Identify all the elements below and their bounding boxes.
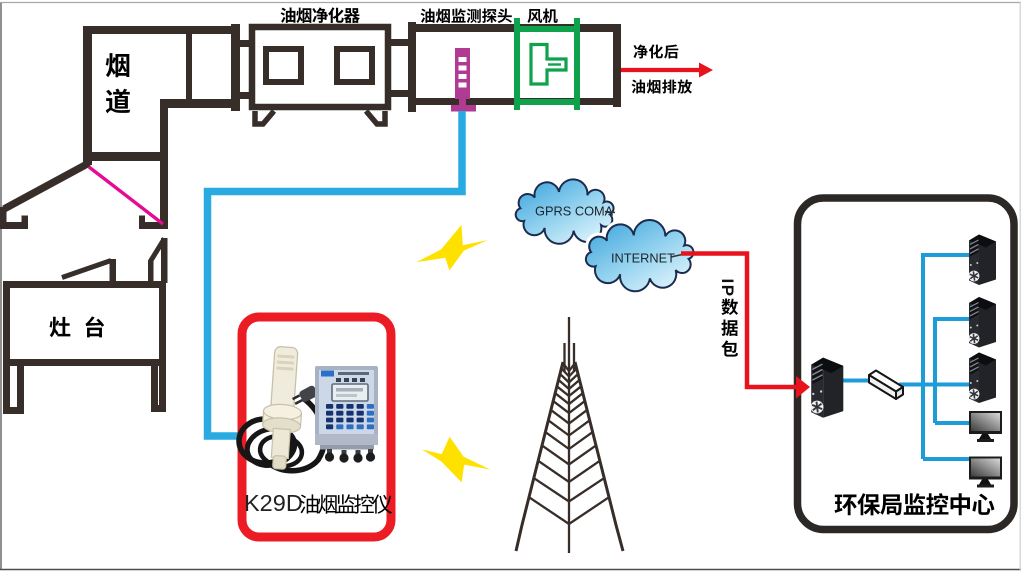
svg-text:INTERNET: INTERNET [611,251,675,266]
svg-text:GPRS COMA: GPRS COMA [535,204,614,219]
svg-text:IP: IP [718,279,737,298]
svg-text:K29D: K29D [244,490,303,516]
